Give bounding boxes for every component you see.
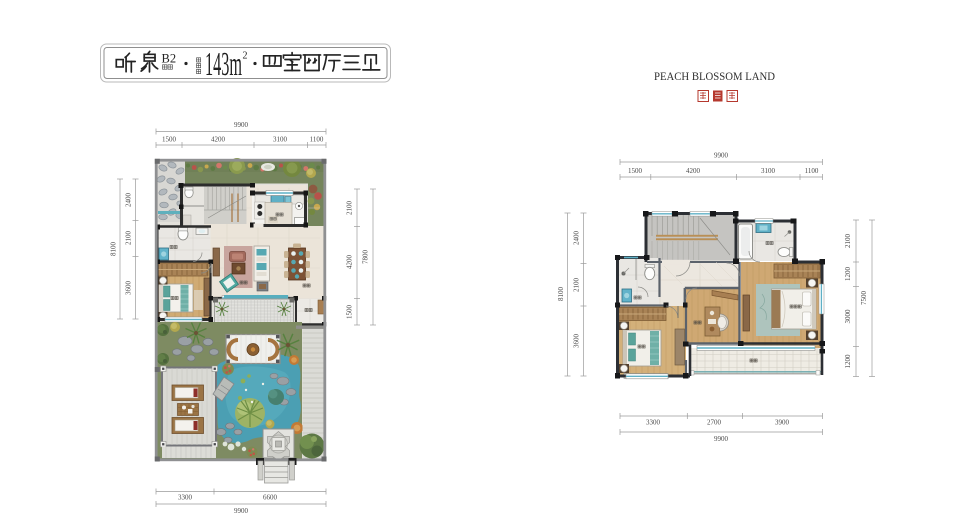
svg-text:1500: 1500 [346,305,354,320]
svg-text:1100: 1100 [805,167,819,175]
svg-text:7500: 7500 [860,291,868,306]
svg-text:7800: 7800 [362,250,370,265]
svg-text:1100: 1100 [310,136,324,144]
svg-text:PEACH BLOSSOM LAND: PEACH BLOSSOM LAND [654,71,775,83]
svg-text:9900: 9900 [234,507,249,515]
svg-text:3100: 3100 [761,167,776,175]
svg-text:2100: 2100 [844,234,852,249]
svg-text:2100: 2100 [573,278,581,293]
svg-text:8100: 8100 [557,287,565,302]
svg-text:1200: 1200 [844,267,852,282]
svg-text:4200: 4200 [346,255,354,270]
svg-text:4200: 4200 [211,136,226,144]
svg-text:3100: 3100 [273,136,288,144]
svg-text:2400: 2400 [573,231,581,246]
svg-text:2400: 2400 [125,193,133,208]
svg-text:3900: 3900 [775,419,790,427]
svg-text:1500: 1500 [628,167,643,175]
svg-text:4200: 4200 [686,167,701,175]
svg-text:9900: 9900 [234,121,249,129]
svg-text:B2: B2 [162,52,177,66]
svg-text:2700: 2700 [707,419,722,427]
svg-text:3300: 3300 [646,419,661,427]
svg-text:3000: 3000 [844,309,852,324]
svg-text:2100: 2100 [125,231,133,246]
svg-text:3300: 3300 [178,494,193,502]
svg-text:3600: 3600 [125,281,133,296]
svg-text:9900: 9900 [714,435,729,443]
svg-text:8100: 8100 [110,242,118,257]
svg-text:1500: 1500 [162,136,177,144]
svg-text:1200: 1200 [844,354,852,369]
svg-text:3600: 3600 [573,334,581,349]
svg-text:143m: 143m [205,46,242,83]
svg-text:9900: 9900 [714,152,729,160]
svg-text:2100: 2100 [346,201,354,216]
svg-text:6600: 6600 [263,494,278,502]
svg-text:2: 2 [243,51,248,62]
